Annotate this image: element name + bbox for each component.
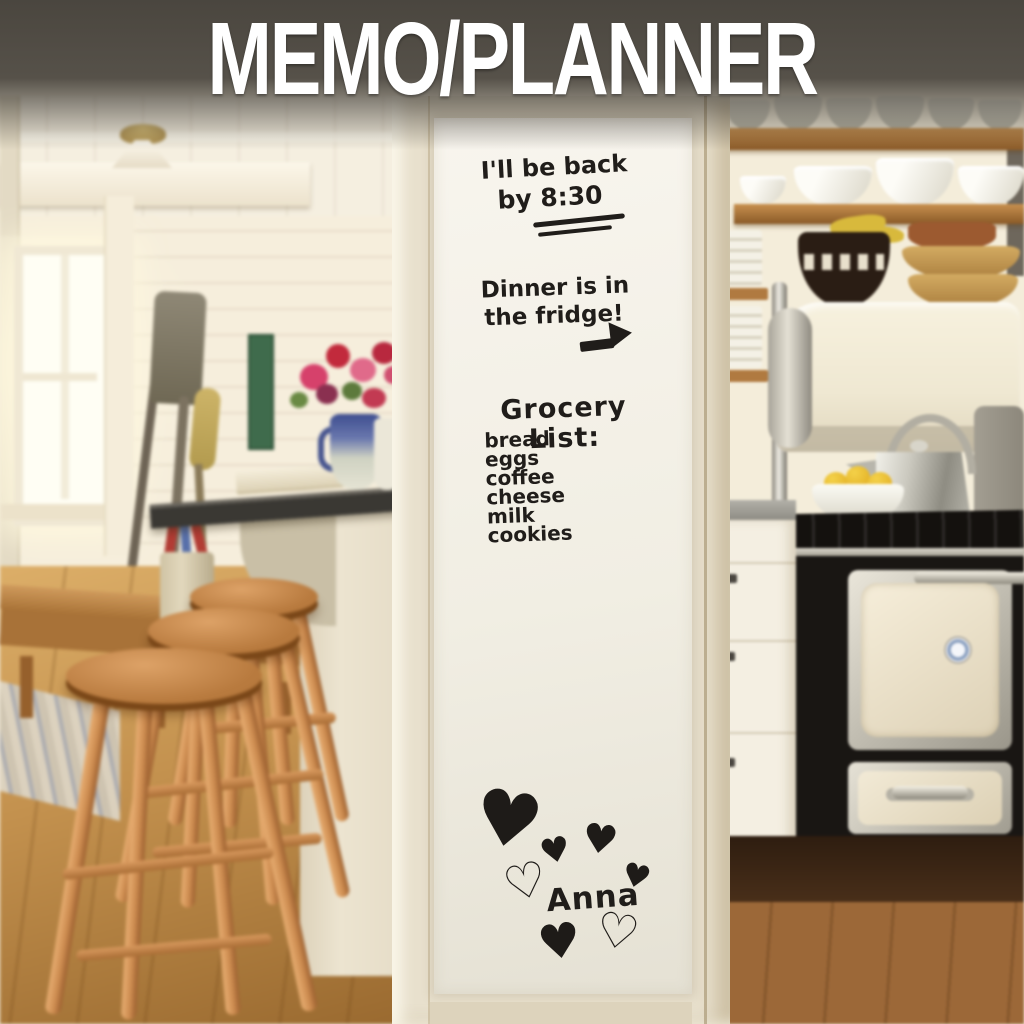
bench-leg bbox=[20, 656, 33, 718]
memo-note-back-line2: by 8:30 bbox=[459, 179, 640, 216]
blue-lantern-jar bbox=[52, 550, 74, 606]
stove-drawer-handle bbox=[892, 786, 968, 799]
title-banner: MEMO/PLANNER bbox=[0, 0, 1024, 150]
oven-door-panel bbox=[861, 583, 999, 737]
heart-doodle-icon: ♥ bbox=[535, 915, 584, 969]
stove-drawer bbox=[848, 762, 1012, 834]
oven-temperature-gauge bbox=[944, 636, 972, 664]
window-frame-post bbox=[104, 196, 134, 556]
pink-flower bbox=[350, 358, 376, 382]
kitchen-memo-planner-photo: I'll be back by 8:30 Dinner is in the fr… bbox=[0, 0, 1024, 1024]
oar-paddle-blade bbox=[149, 291, 207, 406]
flower-greenery bbox=[342, 382, 362, 400]
right-arrow-icon bbox=[608, 320, 633, 348]
whiteboard-memo-sheet[interactable]: I'll be back by 8:30 Dinner is in the fr… bbox=[434, 118, 692, 994]
grocery-list-items: bread eggs coffee cheese milk cookies bbox=[484, 429, 573, 546]
window-mullion-horizontal bbox=[23, 373, 97, 381]
kitchen-pillar: I'll be back by 8:30 Dinner is in the fr… bbox=[392, 96, 730, 1024]
dark-bowl-stripe bbox=[804, 254, 884, 270]
dark-flower bbox=[316, 384, 338, 404]
page-title: MEMO/PLANNER bbox=[102, 7, 921, 110]
stool-seat bbox=[66, 648, 262, 704]
right-kitchen-area bbox=[712, 96, 1024, 1024]
heart-outline-doodle-icon: ♡ bbox=[592, 905, 643, 960]
pillar-trim-line bbox=[704, 96, 707, 1024]
stacked-plates bbox=[726, 306, 762, 368]
left-kitchen-area bbox=[0, 96, 400, 1024]
oven-door bbox=[848, 570, 1012, 750]
pink-flower bbox=[362, 388, 386, 408]
red-flower bbox=[326, 344, 350, 368]
blue-lantern-jar bbox=[2, 538, 24, 594]
flower-greenery bbox=[290, 392, 308, 408]
appliance-chrome-cap bbox=[768, 308, 812, 448]
stacked-plates bbox=[726, 230, 762, 286]
pillar-base-trim bbox=[430, 1002, 692, 1024]
green-wall-frame bbox=[248, 334, 274, 450]
emphasis-underline bbox=[538, 225, 612, 237]
pillar-trim-line bbox=[428, 96, 430, 1024]
right-arrow-icon bbox=[580, 338, 615, 352]
ceiling-beam bbox=[0, 162, 310, 206]
kettle-lid-knob bbox=[910, 440, 928, 452]
grocery-item: cookies bbox=[487, 523, 573, 545]
vintage-stove bbox=[790, 556, 1024, 852]
blue-lantern-jar bbox=[27, 544, 49, 600]
heart-doodle-icon: ♥ bbox=[579, 818, 620, 863]
blue-lantern-jar bbox=[77, 556, 99, 612]
